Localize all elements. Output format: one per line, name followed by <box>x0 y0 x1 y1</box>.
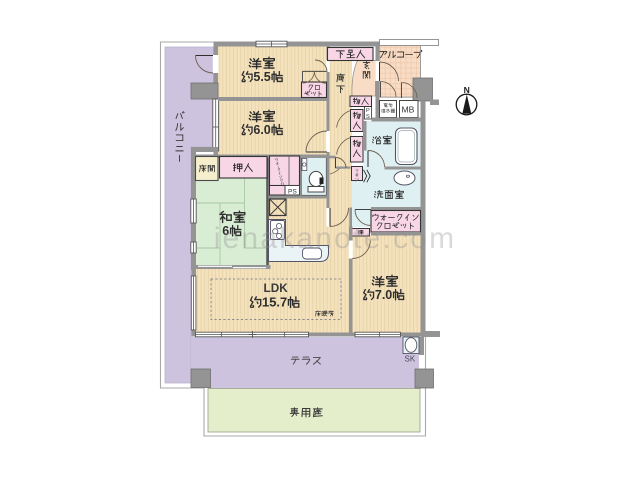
svg-text:S: S <box>366 114 370 120</box>
svg-text:15.7: 15.7 <box>262 294 287 309</box>
svg-text:N: N <box>464 85 470 95</box>
svg-text:PS: PS <box>288 189 297 196</box>
svg-text:5.5: 5.5 <box>253 70 270 84</box>
svg-text:6.0: 6.0 <box>253 123 270 137</box>
svg-text:LDK: LDK <box>264 281 289 295</box>
svg-text:ienakanote.com: ienakanote.com <box>214 222 457 255</box>
svg-text:7.0: 7.0 <box>375 288 392 302</box>
svg-text:SK: SK <box>405 355 416 364</box>
svg-text:MB: MB <box>402 105 415 115</box>
